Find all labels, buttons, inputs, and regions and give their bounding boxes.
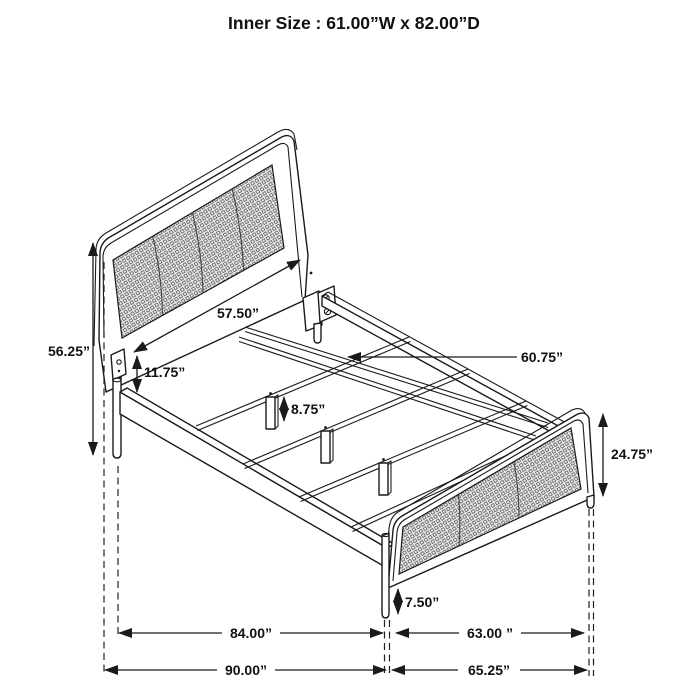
headboard-left-leg xyxy=(113,377,121,458)
screw-hole xyxy=(118,370,120,372)
dimension-overall-length: 90.00” xyxy=(105,662,386,678)
dim-label-support-leg-height: 8.75” xyxy=(291,401,325,417)
footboard-front-leg xyxy=(382,533,389,618)
footboard-right-leg xyxy=(587,495,594,508)
dimension-footboard-height: 24.75” xyxy=(603,414,653,496)
dimension-overall-footboard-span: 65.25” xyxy=(392,662,587,678)
dim-label-footboard-leg-height: 7.50” xyxy=(405,594,439,610)
support-leg xyxy=(321,431,330,463)
far-side-rail xyxy=(322,292,568,438)
front-rail-top-face xyxy=(120,388,394,548)
slat xyxy=(243,369,470,469)
dim-label-slat-length: 60.75” xyxy=(521,349,563,365)
dimension-footboard-leg-height: 7.50” xyxy=(398,589,439,614)
support-leg xyxy=(379,463,388,495)
dim-label-overall-length: 90.00” xyxy=(225,662,267,678)
dim-label-footboard-span: 63.00 ” xyxy=(467,625,513,641)
dim-label-slat-frame-length: 84.00” xyxy=(230,625,272,641)
dim-label-overall-footboard-span: 65.25” xyxy=(468,662,510,678)
footboard-cane-panel xyxy=(399,428,581,574)
dimension-slat-frame-length: 84.00” xyxy=(119,625,383,641)
screw-dot xyxy=(269,392,272,395)
screw-dot xyxy=(324,426,327,429)
dimension-footboard-span: 63.00 ” xyxy=(396,625,584,641)
footboard xyxy=(382,409,594,618)
dim-label-headboard-width: 57.50” xyxy=(217,305,259,321)
dim-label-footboard-height: 24.75” xyxy=(611,446,653,462)
support-leg xyxy=(266,397,275,429)
dim-label-headboard-rail-height: 11.75” xyxy=(144,364,185,380)
front-side-rail xyxy=(120,388,394,568)
inner-size-title: Inner Size : 61.00”W x 82.00”D xyxy=(228,13,480,33)
front-rail-face xyxy=(120,392,387,568)
screw-hole xyxy=(310,272,313,275)
diagram-canvas: Inner Size : 61.00”W x 82.00”D xyxy=(0,0,700,700)
bed-dimension-diagram: Inner Size : 61.00”W x 82.00”D xyxy=(0,0,700,700)
screw-dot xyxy=(382,458,385,461)
screw-hole xyxy=(117,360,121,364)
headboard-right-leg xyxy=(314,323,321,343)
dimension-support-leg-height: 8.75” xyxy=(284,397,325,421)
dimension-headboard-height: 56.25” xyxy=(48,243,93,455)
dim-label-headboard-height: 56.25” xyxy=(48,343,90,359)
